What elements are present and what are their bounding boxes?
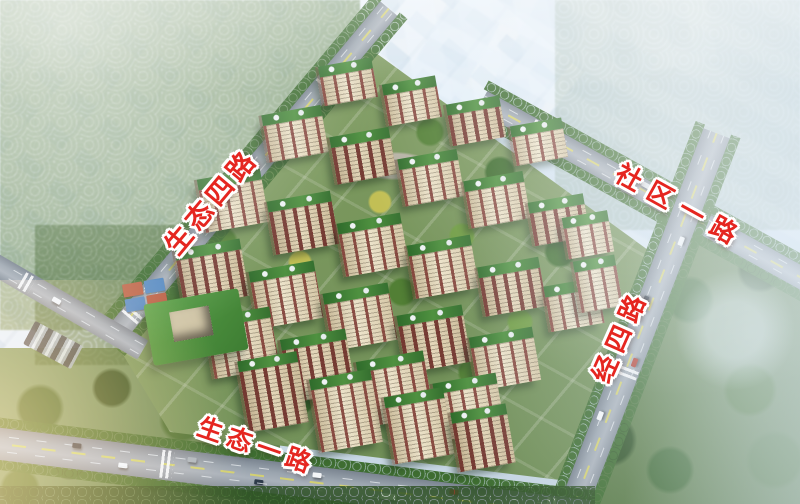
car: [312, 472, 322, 478]
car: [254, 479, 264, 485]
crosswalk: [159, 449, 174, 479]
car: [72, 443, 82, 449]
aerial-masterplan-rendering: 生态四路 社区一路 经四路 生态一路: [0, 0, 800, 504]
car: [51, 296, 61, 305]
car: [677, 236, 685, 246]
car: [596, 411, 604, 421]
car: [187, 457, 197, 463]
car: [631, 357, 639, 367]
crosswalk: [17, 272, 37, 294]
car: [118, 462, 128, 468]
tree-fringe-bottom: [0, 486, 595, 504]
